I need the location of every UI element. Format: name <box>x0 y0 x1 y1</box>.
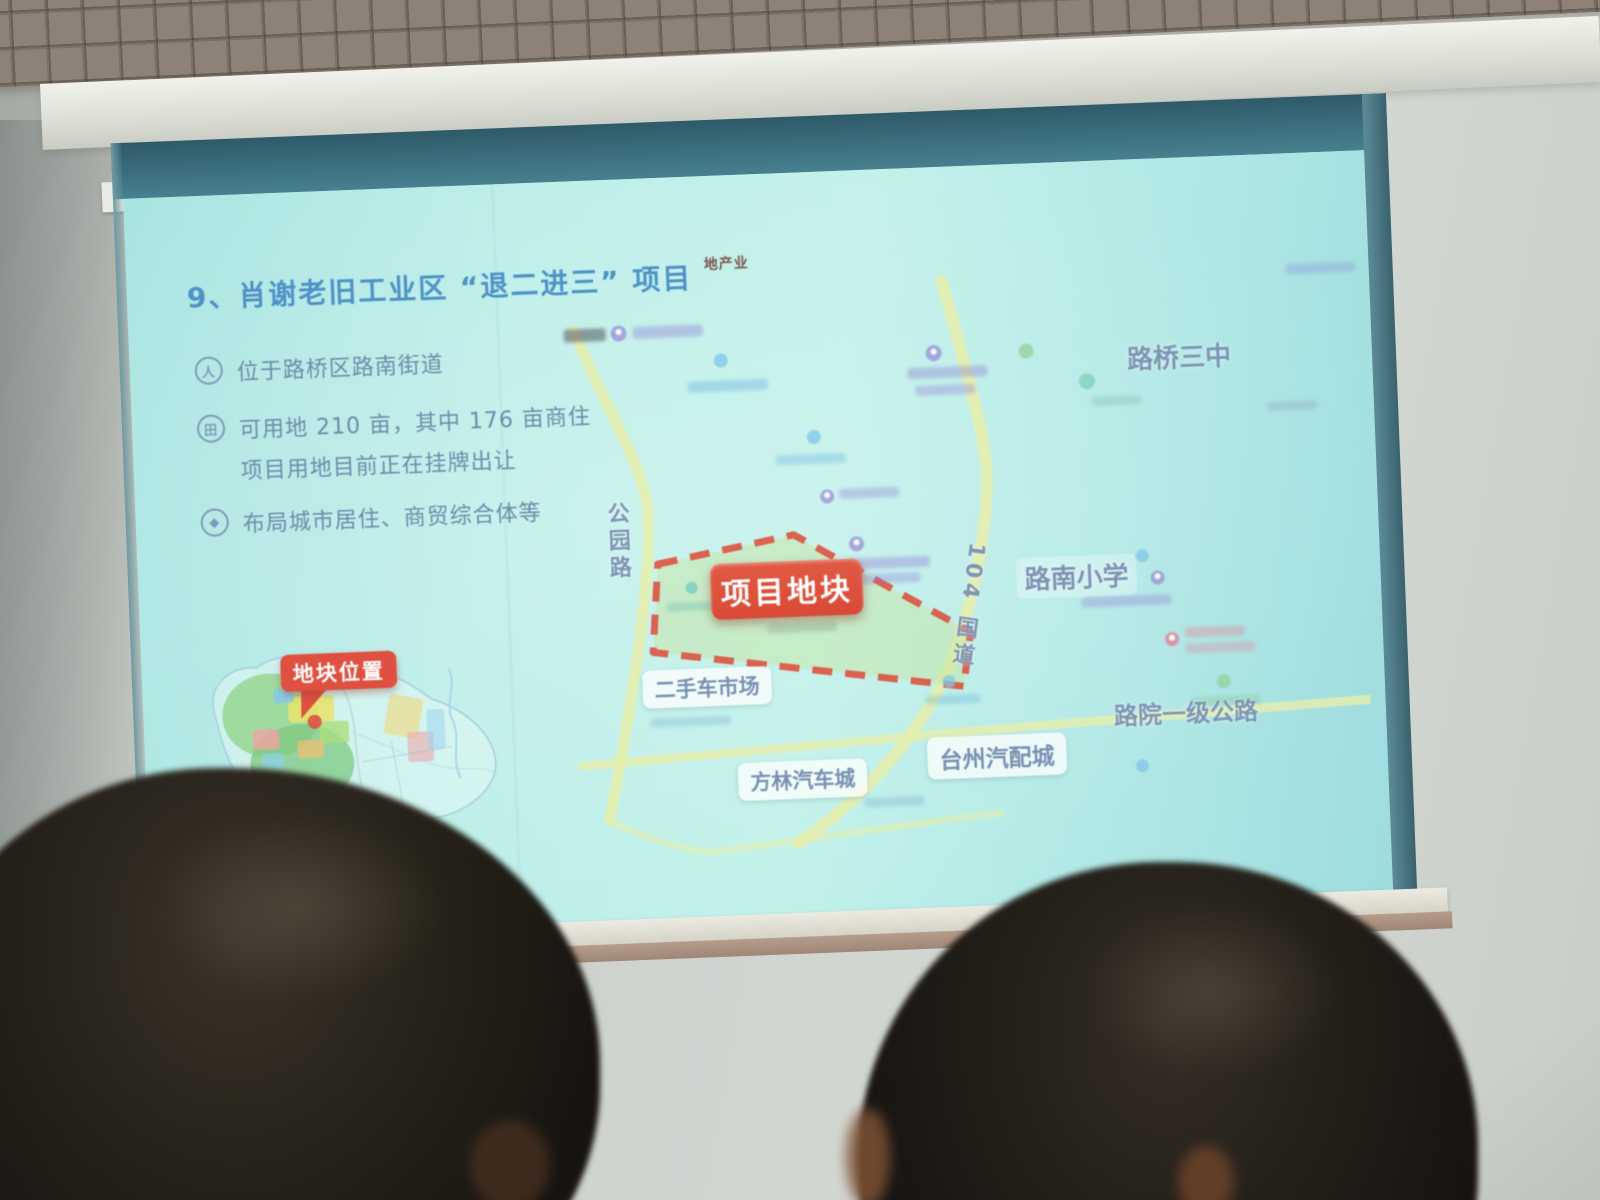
hair-highlight <box>152 810 446 1002</box>
hair-highlight <box>1081 901 1341 1080</box>
plot-location-badge: 地块位置 <box>280 651 397 693</box>
audience-ear-skin <box>470 1120 550 1200</box>
map-label-taizhou-auto-parts-city: 台州汽配城 <box>927 732 1068 779</box>
map-label-lunan-primary-school: 路南小学 <box>1016 553 1138 599</box>
map-label-gongyuan-road: 公园路 <box>599 501 634 583</box>
map-label-luqiao-no3-school: 路桥三中 <box>1126 336 1231 377</box>
audience-ear-skin <box>846 1108 890 1200</box>
map-poi-logo-blur <box>563 328 605 343</box>
map-label-fanglin-auto-city: 方林汽车城 <box>738 758 868 801</box>
map-label-used-car-market: 二手车市场 <box>642 666 772 709</box>
meeting-room-photo: 9、肖谢老旧工业区 “退二进三” 项目地产业 人 位于路桥区路南街道 田 可用地… <box>0 0 1600 1200</box>
project-plot-badge: 项目地块 <box>710 558 864 620</box>
map-label-luyuan-highway: 路院一级公路 <box>1113 691 1258 732</box>
